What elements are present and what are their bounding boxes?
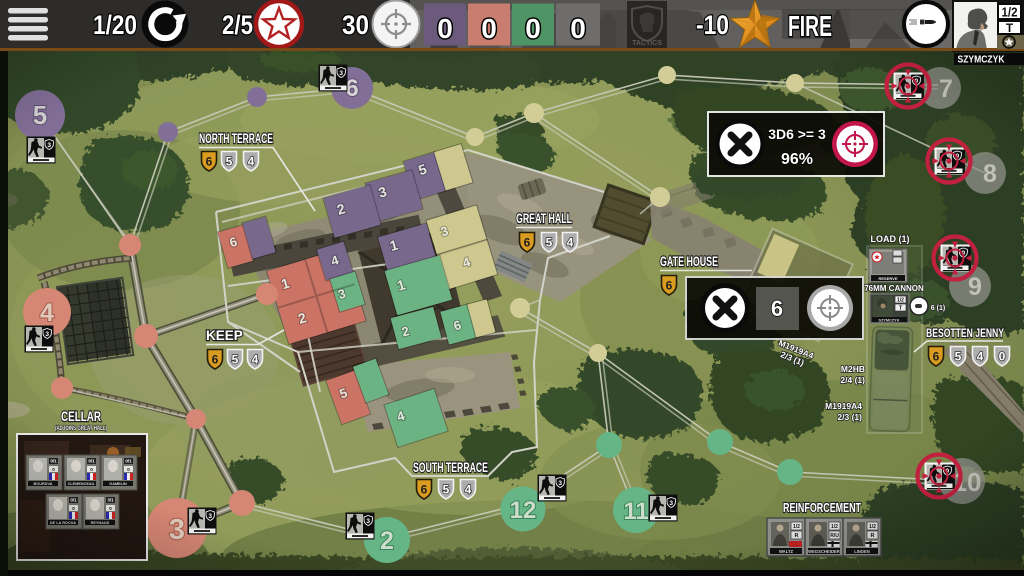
svg-text:0: 0 <box>437 13 453 44</box>
svg-text:SZYMCZYK: SZYMCZYK <box>958 55 1006 66</box>
svg-text:T: T <box>1006 21 1014 35</box>
svg-text:2/5: 2/5 <box>222 10 253 40</box>
svg-text:0: 0 <box>525 13 541 44</box>
svg-text:TACTICS: TACTICS <box>632 40 662 47</box>
svg-text:0: 0 <box>481 13 497 44</box>
svg-text:0: 0 <box>570 13 586 44</box>
svg-text:-10: -10 <box>696 10 729 40</box>
svg-text:30: 30 <box>342 10 369 40</box>
svg-text:FIRE: FIRE <box>788 11 832 43</box>
svg-text:1/20: 1/20 <box>93 10 137 40</box>
svg-text:1/2: 1/2 <box>1002 5 1018 20</box>
